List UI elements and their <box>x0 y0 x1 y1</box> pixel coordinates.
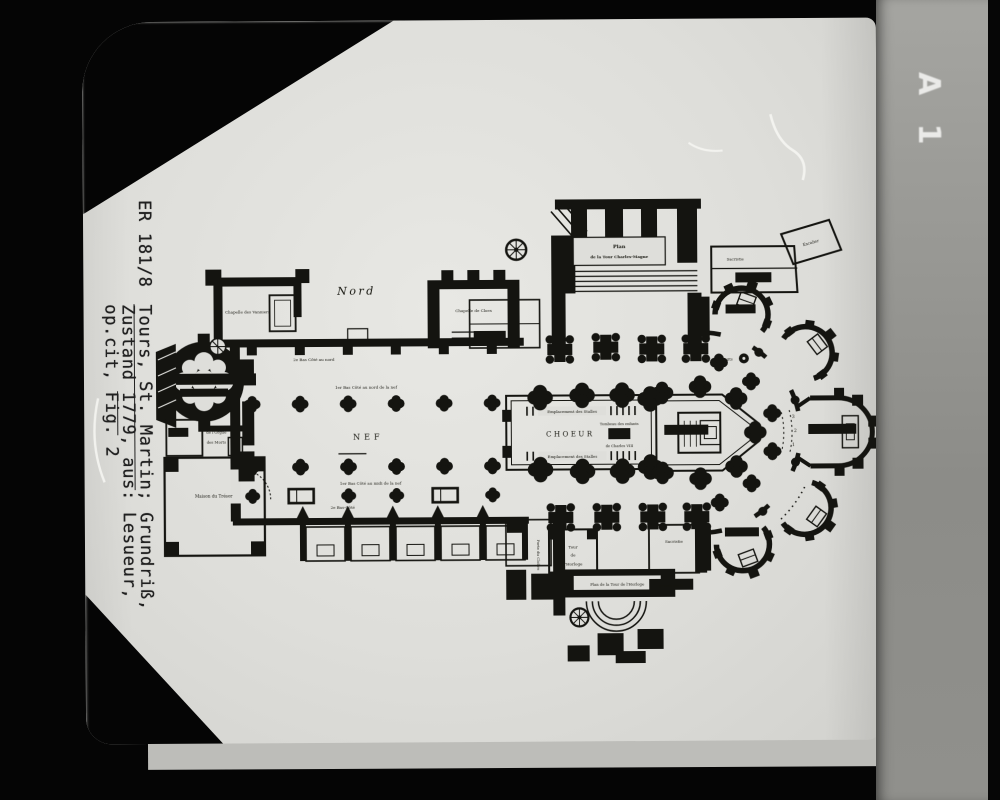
orgue-label-1: de l'Orgue <box>206 430 227 435</box>
step-2-label: 2 <box>794 428 797 434</box>
tour-charlemagne-label-1: Plan <box>613 244 626 250</box>
catalog-number: ER 181/8 <box>134 200 155 288</box>
tour-horloge-plaque-label: Plan de la Tour de l'Horloge <box>590 582 645 587</box>
sacristie-nord-label: Sacristie <box>727 256 745 261</box>
film-scan-page: { "film_label": "A 1", "caption": { "cat… <box>0 0 1000 800</box>
escalier-b-label: Escalier <box>746 276 762 281</box>
caption-source: , aus: Lesueur, <box>118 435 139 599</box>
northwest-transept-rooms <box>470 300 540 348</box>
chapelle-tour-label-1: Chapelle St Nicolas <box>184 379 224 384</box>
photo-print: Nord NEF CHOEUR SANCTUAIRE Emplacement d… <box>82 18 880 745</box>
tombeau-label-1: Tombeau des enfants <box>600 422 639 426</box>
stalles-top-label: Emplacement des Stalles <box>547 409 597 414</box>
escalier-a-label: Escalier <box>482 334 498 339</box>
stalles-bottom-label: Emplacement des Stalles <box>548 454 598 459</box>
sanctuaire-label: SANCTUAIRE <box>668 429 705 434</box>
step-1-label: 1 <box>792 442 795 448</box>
film-edge-right <box>988 0 1000 800</box>
south-transept <box>549 515 708 664</box>
nord-label: Nord <box>336 285 376 298</box>
tour-charlemagne <box>551 199 702 350</box>
tour-room-label-2: de <box>571 552 577 557</box>
choeur-label: CHOEUR <box>546 430 595 438</box>
tour-charlemagne-label-2: de la Tour Charles-Magne <box>590 254 648 259</box>
chapelle-tour-label-2: de la vieille Tour <box>191 393 218 397</box>
spiral-stair-north <box>506 240 526 260</box>
chapelle-ne-label: Chapelle <box>733 308 749 312</box>
caption-figure-ref: op.cit, Fig. 2 <box>101 304 122 457</box>
tour-room-label-3: l'Horloge <box>564 561 583 566</box>
escalier-c-label: Escalier <box>802 238 819 247</box>
nef-label: NEF <box>353 433 383 442</box>
chapelle-cloes-label: Chapelle de Cloes <box>455 308 492 313</box>
tombeau-label-2: de Charles VIII <box>606 444 634 448</box>
maison-tresor-label: Maison du Trésor <box>195 494 233 499</box>
spiral-stair-south <box>570 608 588 626</box>
bas-cote-midi-2-label: 2e Bas-Côté <box>331 505 356 510</box>
caption-line-3: op.cit, Fig. 2 <box>101 200 121 650</box>
frame-id-label: A 1 <box>911 72 946 154</box>
step-3-label: 3 <box>792 414 795 420</box>
sacristie-sud-label: Sacristie <box>665 539 684 544</box>
bas-cote-nord-2-label: 2e Bas Côté au nord <box>293 357 335 362</box>
porte-ouest-label: Porte <box>174 432 184 436</box>
bas-cote-nord-1-label: 1er Bas Côté au nord de la nef <box>335 385 398 390</box>
puits-label: Puits <box>723 356 733 361</box>
porte-sud-label: Porte <box>512 528 522 532</box>
chapelle-vierge-label: Chapelle de la Vierge <box>811 427 854 432</box>
chapelle-vanniers-label: Chapelle des Vanniers <box>225 309 270 314</box>
caption-block: ER 181/8Tours, St. Martin; Grundriß, Zus… <box>101 200 155 650</box>
orgue-label-2: des Morts <box>207 440 226 445</box>
tour-room-label-1: Tour <box>568 544 577 549</box>
bas-cote-midi-1-label: 1er Bas Côté au midi de la nef <box>340 480 402 485</box>
chapelle-se-label: Chapelle <box>734 531 750 535</box>
porte-cloitre-label: Porte du Cloître <box>536 540 541 572</box>
plan-ink: Nord NEF CHOEUR SANCTUAIRE Emplacement d… <box>93 114 881 667</box>
grande-porte-label: grande porte <box>659 584 683 588</box>
south-chapels <box>306 526 525 561</box>
